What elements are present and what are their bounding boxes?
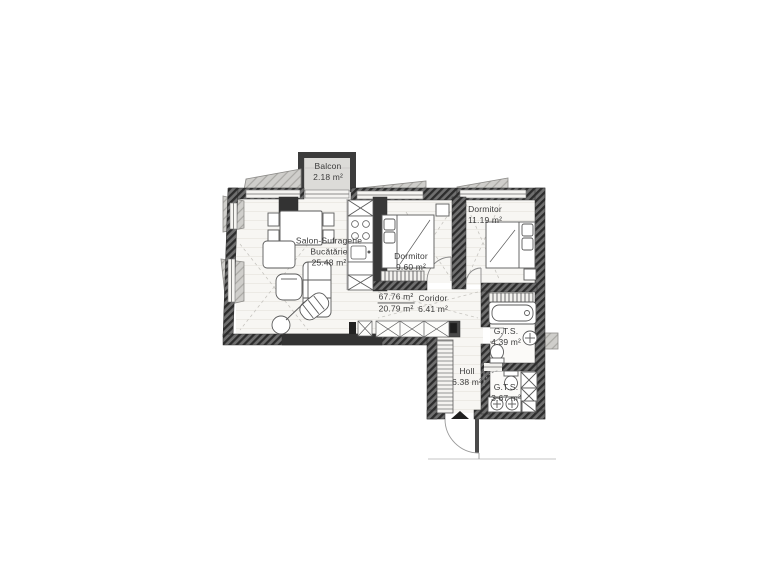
corridor-closet <box>349 321 449 337</box>
room-area: 9.60 m² <box>394 262 428 273</box>
floor-plan: Balcon 2.18 m² Salon-Sufragerie Bucătări… <box>0 0 760 570</box>
nightstand <box>436 204 449 216</box>
washing-machine <box>521 372 537 404</box>
living-side-window-2 <box>228 259 235 302</box>
room-name: Salon-Sufragerie <box>296 235 362 246</box>
bathtub <box>489 302 536 324</box>
room-name: Coridor <box>418 293 448 304</box>
room-name: G.T.S. <box>491 382 521 393</box>
total-area: 67.76 m² <box>378 291 415 303</box>
living-side-window-1 <box>230 203 237 229</box>
bedroom-small-window <box>357 191 423 199</box>
room-name-2: Bucătărie <box>296 246 362 257</box>
room-label-bedroom-small: Dormitor 9.60 m² <box>394 251 428 273</box>
balcony-door <box>305 190 349 198</box>
room-area: 2.18 m² <box>313 172 343 183</box>
room-area: 3.67 m² <box>491 393 521 404</box>
room-area: 6.41 m² <box>418 304 448 315</box>
small-appliance <box>522 401 536 412</box>
room-name: Dormitor <box>468 204 502 215</box>
room-label-balcony: Balcon 2.18 m² <box>313 161 343 183</box>
room-label-bedroom-large: Dormitor 11.19 m² <box>468 204 502 226</box>
secondary-area: 20.79 m² <box>378 304 415 315</box>
sideboard <box>263 241 295 268</box>
hall-wardrobe <box>437 340 453 413</box>
armchair <box>276 274 302 300</box>
room-label-bathroom-bottom: G.T.S. 3.67 m² <box>491 382 521 404</box>
washbasin <box>523 331 537 345</box>
room-label-hall: Holl 6.38 m² <box>452 366 482 388</box>
room-name: G.T.S. <box>491 326 521 337</box>
room-area: 4.39 m² <box>491 337 521 348</box>
bed-large <box>486 222 535 268</box>
kitchen-cabinet-bottom <box>348 275 373 290</box>
room-label-living: Salon-Sufragerie Bucătărie 25.48 m² <box>296 235 362 268</box>
room-area: 6.38 m² <box>452 377 482 388</box>
floor-plan-drawing <box>0 0 760 570</box>
room-label-corridor: Coridor 6.41 m² <box>418 293 448 315</box>
room-name: Balcon <box>313 161 343 172</box>
room-name: Dormitor <box>394 251 428 262</box>
room-label-bathroom-top: G.T.S. 4.39 m² <box>491 326 521 348</box>
room-area: 11.19 m² <box>468 215 502 226</box>
kitchen-cabinet-top <box>348 200 373 216</box>
area-summary: 67.76 m² 20.79 m² <box>378 291 415 314</box>
room-area: 25.48 m² <box>296 258 362 269</box>
nightstand <box>524 269 536 280</box>
room-name: Holl <box>452 366 482 377</box>
bedroom-large-window <box>460 190 526 198</box>
